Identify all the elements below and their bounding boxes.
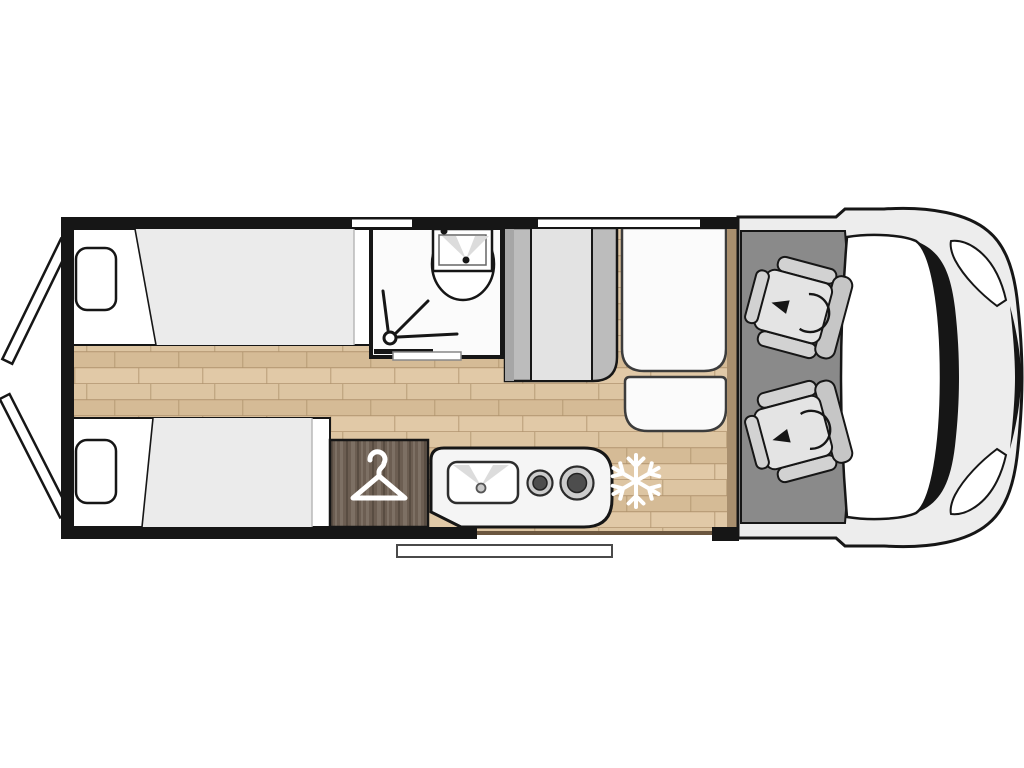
kitchen-sink bbox=[448, 462, 518, 503]
window-top-2 bbox=[538, 220, 700, 228]
wall-rear bbox=[61, 217, 74, 539]
pillow bbox=[76, 440, 116, 503]
bed-top bbox=[73, 229, 370, 345]
hob-burner-large bbox=[561, 467, 594, 500]
floorplan-canvas bbox=[0, 0, 1024, 768]
door-opening-trim bbox=[477, 531, 712, 535]
kitchen-block bbox=[431, 448, 612, 527]
rear-door-top bbox=[2, 239, 71, 364]
bathroom-sliding-door bbox=[393, 352, 461, 360]
cab bbox=[738, 208, 1022, 546]
wardrobe bbox=[330, 440, 428, 527]
entry-step bbox=[397, 545, 612, 557]
duvet bbox=[135, 229, 354, 345]
dinette-bench bbox=[505, 228, 617, 381]
sink-drain bbox=[477, 484, 486, 493]
bathroom bbox=[371, 228, 502, 361]
bed-bottom bbox=[73, 418, 330, 527]
dinette-table-seat bbox=[622, 228, 726, 371]
windshield bbox=[841, 235, 941, 519]
dinette-side-seat bbox=[625, 377, 726, 431]
hob-burner-small bbox=[528, 471, 553, 496]
rear-doors-open bbox=[0, 239, 71, 518]
pillow bbox=[76, 248, 116, 310]
window-top-1 bbox=[352, 220, 412, 228]
wall-bottom-right bbox=[712, 527, 739, 541]
wall-bottom-left bbox=[61, 527, 477, 539]
rear-door-bottom bbox=[0, 394, 70, 517]
floorplan-page bbox=[0, 0, 1024, 768]
duvet bbox=[142, 418, 312, 527]
washbasin-cabinet bbox=[433, 228, 492, 272]
